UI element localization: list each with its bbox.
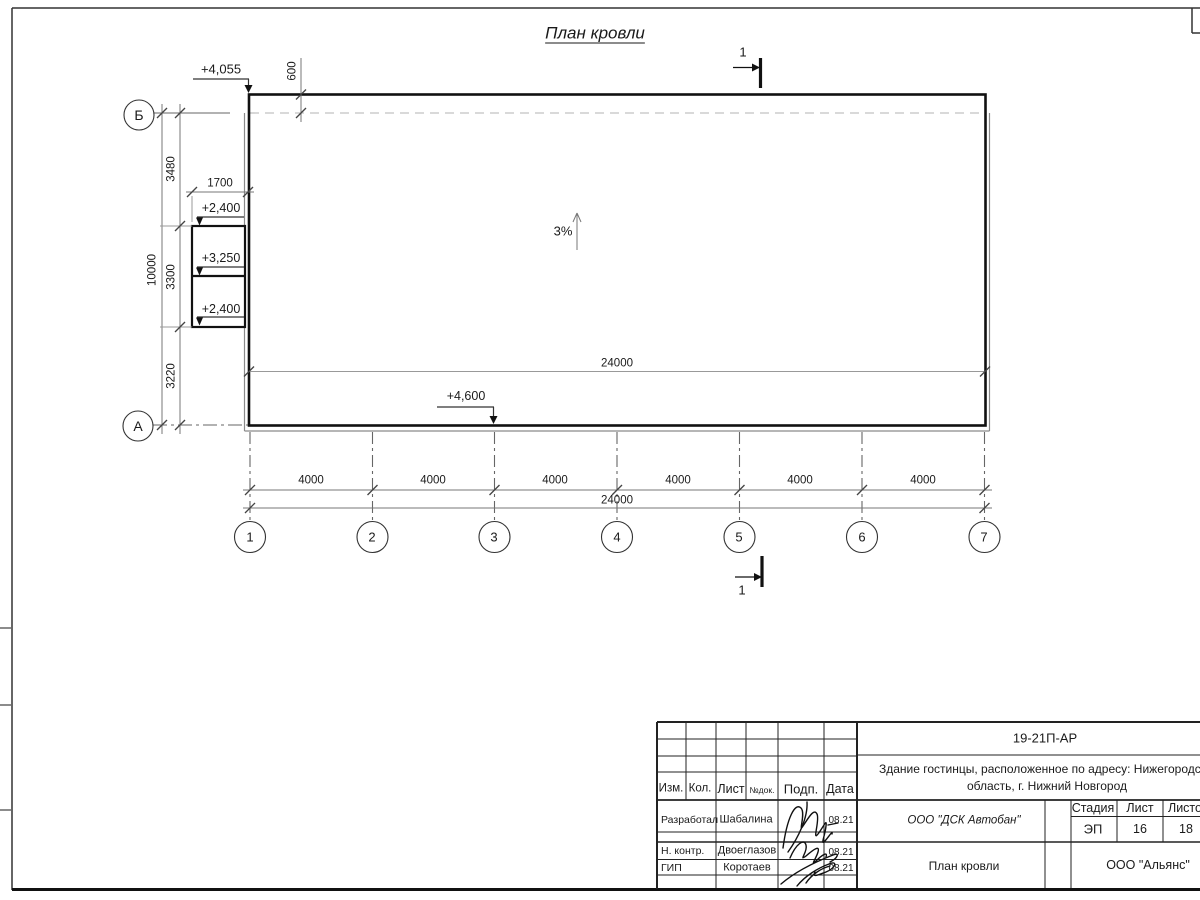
elevation-canopy-mid: +3,250 bbox=[202, 252, 241, 265]
dimension-ticks bbox=[157, 90, 990, 514]
titleblock-col-kol: Кол. bbox=[689, 783, 712, 795]
elevation-parapet: +4,055 bbox=[201, 63, 241, 76]
titleblock-sheets-label: Листов bbox=[1168, 802, 1200, 815]
dim-bay-4: 4000 bbox=[665, 475, 691, 487]
titleblock-stage-value: ЭП bbox=[1084, 823, 1103, 836]
titleblock-name-2: Двоеглазов bbox=[718, 846, 776, 857]
slope-label: 3% bbox=[554, 225, 573, 238]
dim-left-total: 10000 bbox=[147, 254, 159, 286]
dim-left-seg1: 3480 bbox=[166, 156, 178, 182]
titleblock-project-line2: область, г. Нижний Новгород bbox=[967, 780, 1127, 792]
grid-bubble-7: 7 bbox=[980, 531, 987, 544]
titleblock-date-2: 08.21 bbox=[828, 848, 853, 858]
roof-outline bbox=[192, 95, 986, 426]
dim-total-bottom: 24000 bbox=[601, 495, 633, 507]
elevation-canopy-lower: +2,400 bbox=[202, 303, 241, 316]
dim-bay-1: 4000 bbox=[298, 475, 324, 487]
titleblock-stage-label: Стадия bbox=[1072, 802, 1115, 815]
titleblock-role-3: ГИП bbox=[661, 863, 682, 874]
titleblock-project-line1: Здание гостинцы, расположенное по адресу… bbox=[879, 763, 1200, 775]
titleblock-role-1: Разработал bbox=[661, 815, 718, 826]
titleblock-org: ООО "Альянс" bbox=[1106, 859, 1190, 872]
dimension-lines bbox=[160, 58, 992, 508]
axis-label-a: А bbox=[133, 419, 142, 433]
titleblock-date-3: 08.21 bbox=[828, 864, 853, 874]
elevation-entry: +4,600 bbox=[447, 390, 486, 403]
titleblock-date-1: 08.21 bbox=[828, 816, 853, 826]
dim-total-inner: 24000 bbox=[601, 358, 633, 370]
titleblock-col-podp: Подп. bbox=[784, 783, 819, 796]
elevation-canopy-upper: +2,400 bbox=[202, 202, 241, 215]
dim-canopy-width: 1700 bbox=[207, 178, 233, 190]
titleblock-col-list: Лист bbox=[717, 783, 744, 796]
titleblock-role-2: Н. контр. bbox=[661, 846, 704, 857]
grid-bubble-1: 1 bbox=[246, 531, 253, 544]
dim-overhang: 600 bbox=[287, 61, 299, 80]
dim-bay-2: 4000 bbox=[420, 475, 446, 487]
dim-left-seg3: 3220 bbox=[166, 363, 178, 389]
titleblock-col-data: Дата bbox=[826, 783, 854, 796]
section-mark-top-label: 1 bbox=[739, 46, 746, 59]
titleblock-sheet-label: Лист bbox=[1126, 802, 1153, 815]
slope-arrow bbox=[573, 213, 581, 250]
dim-bay-5: 4000 bbox=[787, 475, 813, 487]
section-mark-bottom-label: 1 bbox=[738, 584, 745, 597]
dim-bay-3: 4000 bbox=[542, 475, 568, 487]
grid-bubble-2: 2 bbox=[368, 531, 375, 544]
building-wall-lines bbox=[245, 113, 990, 431]
titleblock-sheets-value: 18 bbox=[1179, 823, 1193, 836]
drawing-sheet: План кровли 1 1 +4,055 600 Б А 3480 3300… bbox=[0, 0, 1200, 900]
grid-bubble-5: 5 bbox=[735, 531, 742, 544]
titleblock-company: ООО "ДСК Автобан" bbox=[907, 815, 1020, 827]
titleblock-col-izm: Изм. bbox=[659, 783, 684, 795]
titleblock-name-1: Шабалина bbox=[719, 815, 772, 826]
titleblock-doc-code: 19-21П-АР bbox=[1013, 732, 1077, 745]
dim-bay-6: 4000 bbox=[910, 475, 936, 487]
grid-bubble-3: 3 bbox=[490, 531, 497, 544]
drawing-title: План кровли bbox=[545, 25, 645, 42]
axis-label-b: Б bbox=[134, 108, 143, 122]
titleblock-col-ndok: №док. bbox=[750, 786, 775, 795]
grid-bubble-6: 6 bbox=[858, 531, 865, 544]
titleblock-sheet-value: 16 bbox=[1133, 823, 1147, 836]
titleblock-name-3: Коротаев bbox=[723, 863, 771, 874]
titleblock-sheet-title: План кровли bbox=[929, 860, 1000, 872]
dim-left-seg2: 3300 bbox=[166, 264, 178, 290]
axis-lines bbox=[153, 113, 985, 521]
grid-bubble-4: 4 bbox=[613, 531, 620, 544]
